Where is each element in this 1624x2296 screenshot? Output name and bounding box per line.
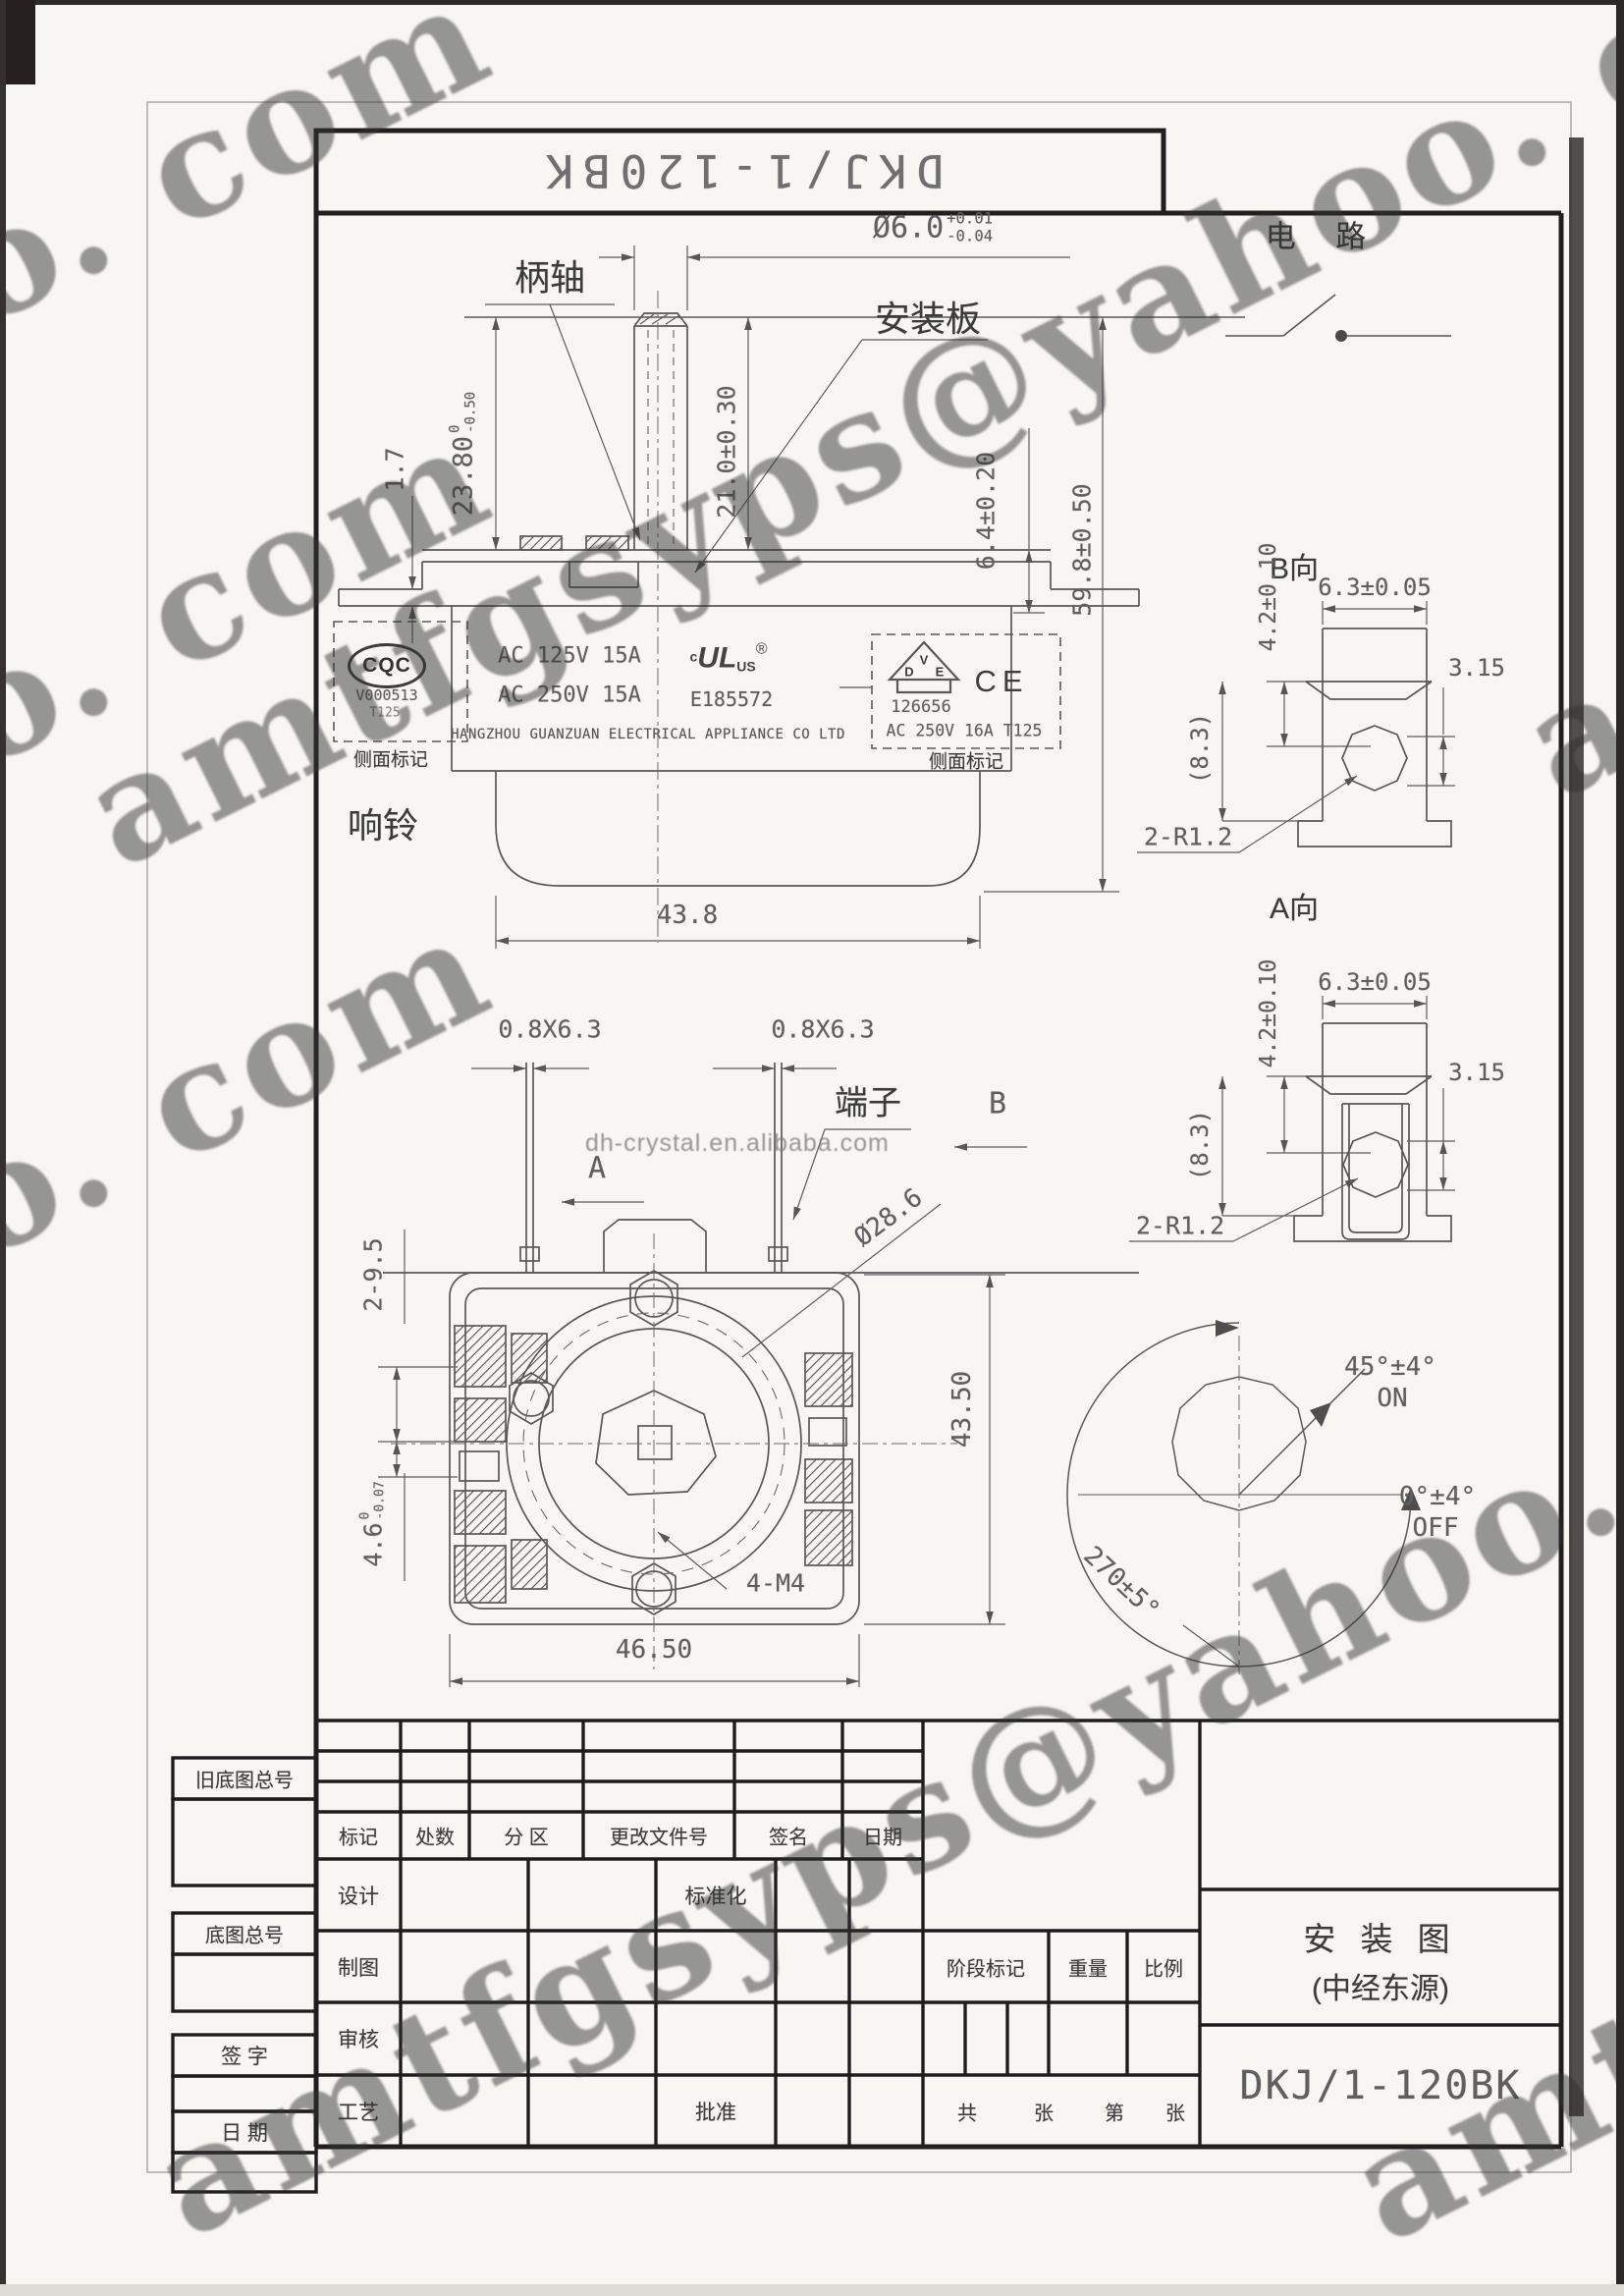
scan-shadow-band-right bbox=[1569, 137, 1584, 2116]
sheet-total-label: 共 bbox=[957, 2098, 977, 2126]
ce-mark-icon: CE bbox=[974, 664, 1028, 699]
dim-435: 43.50 bbox=[947, 1371, 977, 1448]
role-approve: 批准 bbox=[695, 2097, 736, 2126]
alibaba-watermark: dh-crystal.en.alibaba.com bbox=[585, 1129, 890, 1158]
rotation-off-angle: 0°±4° bbox=[1399, 1482, 1476, 1511]
rating-ac250: AC 250V 15A bbox=[498, 683, 641, 708]
dim-terminal-left: 0.8X6.3 bbox=[498, 1015, 601, 1044]
vde-logo-e: E bbox=[936, 665, 945, 680]
titleblock-part-number: DKJ/1-120BK bbox=[1240, 2063, 1522, 2108]
label-side-mark-right: 侧面标记 bbox=[929, 747, 1003, 774]
dim-plate-thickness: 1.7 bbox=[381, 447, 409, 491]
titleblock-base-no: 底图总号 bbox=[205, 1920, 284, 1948]
dim-shaft-length: 23.80 0-0.50 bbox=[449, 392, 479, 517]
manufacturer-name: HANGZHOU GUANZUAN ELECTRICAL APPLIANCE C… bbox=[451, 727, 845, 742]
dim-438: 43.8 bbox=[657, 901, 719, 930]
rotation-off-label: OFF bbox=[1413, 1513, 1459, 1543]
cqc-cert-number: V000513 bbox=[355, 686, 417, 704]
detail-b-dim-315: 3.15 bbox=[1448, 654, 1505, 682]
cqc-logo-icon: CQC bbox=[348, 643, 426, 688]
rotation-on-angle: 45°±4° bbox=[1344, 1352, 1436, 1382]
titleblock-scale: 比例 bbox=[1144, 1953, 1183, 1982]
role-process: 工艺 bbox=[338, 2097, 379, 2126]
ul-file-number: E185572 bbox=[690, 687, 773, 711]
top-bar-part-number: DKJ/1-120BK bbox=[316, 131, 1164, 211]
vde-logo-v: V bbox=[920, 653, 929, 668]
dim-465: 46.50 bbox=[616, 1635, 692, 1665]
detail-a-dim-83: (8.3) bbox=[1186, 1110, 1214, 1180]
rev-header-count: 处数 bbox=[415, 1822, 455, 1850]
label-bell: 响铃 bbox=[348, 797, 418, 848]
dim-46: 4.6 0-0.07 bbox=[359, 1481, 388, 1566]
detail-a-dim-315: 3.15 bbox=[1448, 1059, 1505, 1086]
rating-ac125: AC 125V 15A bbox=[498, 644, 641, 669]
dim-terminal-right: 0.8X6.3 bbox=[771, 1015, 874, 1044]
rev-header-zone: 分 区 bbox=[504, 1822, 549, 1850]
rev-header-date: 日期 bbox=[863, 1822, 902, 1850]
detail-a-dim-42: 4.2±0.10 bbox=[1256, 959, 1281, 1068]
rotation-on-label: ON bbox=[1377, 1384, 1407, 1413]
dim-64: 6.4±0.20 bbox=[972, 452, 1001, 570]
detail-a-title: A向 bbox=[1270, 884, 1319, 927]
ul-mark-icon: cULUS® bbox=[689, 641, 767, 676]
detail-a-dim-63: 6.3±0.05 bbox=[1318, 968, 1432, 996]
role-design: 设计 bbox=[338, 1881, 379, 1910]
sheet-no-label: 第 bbox=[1105, 2098, 1124, 2126]
vde-logo-d: D bbox=[904, 665, 913, 680]
cqc-t-rating: T125 bbox=[369, 706, 400, 721]
dim-4m4: 4-M4 bbox=[746, 1569, 805, 1598]
vde-rating: AC 250V 16A T125 bbox=[887, 722, 1043, 740]
role-draft: 制图 bbox=[338, 1952, 379, 1982]
detail-b-dim-83: (8.3) bbox=[1186, 713, 1214, 784]
dim-2-95: 2-9.5 bbox=[359, 1237, 388, 1311]
rev-header-sign: 签名 bbox=[769, 1822, 808, 1850]
view-arrow-b-label: B bbox=[989, 1087, 1006, 1121]
label-side-mark-left: 侧面标记 bbox=[353, 745, 428, 772]
scan-edge-left bbox=[0, 0, 6, 2296]
sheet-zhang2: 张 bbox=[1165, 2098, 1185, 2126]
titleblock-weight: 重量 bbox=[1068, 1953, 1108, 1982]
vde-cert-number: 126656 bbox=[891, 697, 950, 717]
titleblock-stage-mark: 阶段标记 bbox=[947, 1953, 1025, 1982]
detail-b-dim-r: 2-R1.2 bbox=[1144, 823, 1232, 851]
rev-header-mark: 标记 bbox=[339, 1822, 378, 1850]
detail-b-dim-42: 4.2±0.10 bbox=[1256, 543, 1281, 652]
detail-a-dim-r: 2-R1.2 bbox=[1136, 1212, 1224, 1240]
titleblock-signature: 签 字 bbox=[221, 2041, 268, 2070]
label-handle-shaft: 柄轴 bbox=[514, 249, 585, 301]
label-mounting-plate: 安装板 bbox=[875, 291, 981, 342]
dim-shaft-diameter: Ø6.0 +0.01-0.04 bbox=[873, 211, 993, 246]
drawing-title-line1: 安 装 图 bbox=[1303, 1913, 1457, 1960]
scan-edge-right bbox=[1616, 0, 1624, 2296]
scanned-drawing-page: DKJ/1-120BK Ø6.0 +0.01-0.04 柄轴 安装板 电 路 2… bbox=[0, 0, 1624, 2296]
label-circuit: 电 路 bbox=[1266, 212, 1382, 256]
role-check: 审核 bbox=[338, 2024, 379, 2053]
titleblock-old-base-no: 旧底图总号 bbox=[195, 1765, 294, 1793]
scan-edge-bottom bbox=[0, 2284, 1624, 2296]
role-standardize: 标准化 bbox=[685, 1881, 747, 1910]
dim-598: 59.8±0.50 bbox=[1068, 483, 1097, 616]
sheet-zhang1: 张 bbox=[1034, 2098, 1054, 2126]
drawing-title-line2: (中经东源) bbox=[1312, 1964, 1449, 2007]
detail-b-dim-63: 6.3±0.05 bbox=[1318, 574, 1432, 601]
scan-edge-top bbox=[0, 0, 1624, 5]
rev-header-docno: 更改文件号 bbox=[610, 1822, 708, 1850]
titleblock-date: 日 期 bbox=[221, 2117, 268, 2147]
dim-21: 21.0±0.30 bbox=[713, 385, 741, 518]
label-terminal: 端子 bbox=[835, 1076, 901, 1124]
